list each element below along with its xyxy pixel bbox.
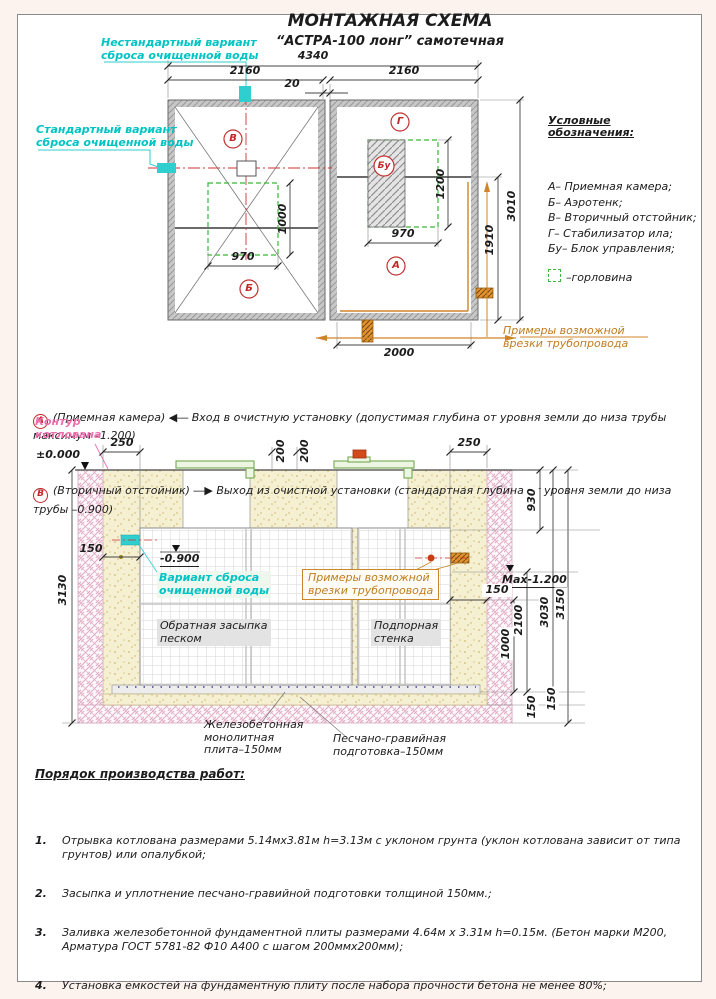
standard-discharge-stub — [157, 163, 176, 173]
legend-throat: –горловина — [548, 269, 700, 286]
work-order-item-number: 4. — [35, 979, 62, 993]
note-row: В(Вторичный отстойник) ―▶ Выход из очист… — [33, 471, 699, 516]
dim-150-left: 150 — [78, 543, 104, 556]
level-zero: ±0.000 — [36, 449, 80, 462]
dim-2000: 2000 — [374, 347, 424, 360]
dim-970-left: 970 — [223, 251, 263, 264]
dim-3130: 3130 — [57, 575, 70, 606]
marker-bu: Бу — [378, 160, 391, 173]
dim-150-right: 150 — [482, 584, 512, 597]
work-order-item: 3. Заливка железобетонной фундаментной п… — [35, 926, 689, 954]
work-order-item-number: 2. — [35, 887, 62, 901]
marker-v: В — [229, 133, 237, 146]
page-title: МОНТАЖНАЯ СХЕМА — [240, 15, 540, 28]
marker-b: Б — [245, 283, 253, 296]
work-order-item-text: Засыпка и уплотнение песчано-гравийной п… — [62, 887, 689, 901]
dim-3030: 3030 — [539, 596, 552, 629]
work-order-item: 2. Засыпка и уплотнение песчано-гравийно… — [35, 887, 689, 901]
dim-200-b: 200 — [299, 440, 312, 463]
nonstandard-discharge-stub — [239, 86, 251, 102]
dim-3010: 3010 — [506, 191, 519, 222]
page-subtitle: “АСТРА-100 лонг” самотечная — [240, 36, 540, 49]
dim-2160-left: 2160 — [215, 65, 275, 78]
legend-item: А– Приемная камера; — [548, 179, 700, 195]
work-order-item-number: 1. — [35, 834, 62, 862]
dim-1200: 1200 — [435, 169, 448, 200]
dim-250-left: 250 — [104, 437, 140, 450]
legend-item: В– Вторичный отстойник; — [548, 210, 700, 226]
dim-970-right: 970 — [383, 228, 423, 241]
work-order-item: 4. Установка емкостей на фундаментную пл… — [35, 979, 689, 993]
label-standard-discharge: Стандартный вариант сброса очищенной вод… — [36, 124, 194, 149]
work-order-item-text: Заливка железобетонной фундаментной плит… — [62, 926, 689, 954]
label-retaining-wall: Подпорная стенка — [371, 619, 441, 646]
dim-1000-plan: 1000 — [277, 204, 290, 235]
legend-title: Условные обозначения: — [548, 115, 700, 140]
label-pipe-examples-plan: Примеры возможной врезки трубопровода — [503, 325, 628, 350]
dim-150-gravel: 150 — [546, 687, 559, 712]
dim-250-right: 250 — [451, 437, 487, 450]
legend-item: Бу– Блок управления; — [548, 241, 700, 257]
dim-2100: 2100 — [513, 604, 526, 637]
dim-150-slab: 150 — [526, 695, 539, 720]
dim-2160-right: 2160 — [374, 65, 434, 78]
dim-1000-section: 1000 — [500, 628, 513, 661]
dim-3150: 3150 — [555, 588, 568, 621]
label-pit-contour: Контур котлована — [35, 416, 101, 441]
work-order-item-number: 3. — [35, 926, 62, 954]
work-order-item: 1. Отрывка котлована размерами 5.14мх3.8… — [35, 834, 689, 862]
label-backfill: Обратная засыпка песком — [157, 619, 271, 646]
dim-930: 930 — [526, 488, 539, 513]
dim-200-a: 200 — [275, 440, 288, 463]
work-order-list: 1. Отрывка котлована размерами 5.14мх3.8… — [35, 797, 689, 999]
work-order: Порядок производства работ: 1. Отрывка к… — [35, 755, 689, 999]
level-minus-0900: -0.900 — [160, 553, 199, 567]
work-order-title: Порядок производства работ: — [35, 768, 689, 781]
dim-20: 20 — [280, 78, 304, 91]
work-order-item-text: Отрывка котлована размерами 5.14мх3.81м … — [62, 834, 689, 862]
label-pipe-examples-section: Примеры возможной врезки трубопровода — [302, 569, 439, 600]
marker-a: А — [392, 260, 400, 273]
marker-g: Г — [397, 116, 403, 129]
legend: Условные обозначения: А– Приемная камера… — [548, 102, 700, 298]
label-slab: Железобетонная монолитная плита–150мм — [204, 719, 303, 757]
legend-item: Г– Стабилизатор ила; — [548, 226, 700, 242]
work-order-item-text: Установка емкостей на фундаментную плиту… — [62, 979, 689, 993]
note-marker: В — [33, 488, 48, 503]
dim-1910: 1910 — [484, 225, 497, 256]
throat-icon — [548, 269, 561, 282]
legend-item: Б– Аэротенк; — [548, 195, 700, 211]
dim-4340: 4340 — [283, 50, 343, 63]
label-nonstandard-discharge: Нестандартный вариант сброса очищенной в… — [101, 37, 259, 62]
label-discharge-variant: Вариант сброса очищенной воды — [157, 571, 271, 598]
drawing-sheet: МОНТАЖНАЯ СХЕМА “АСТРА-100 лонг” самотеч… — [0, 0, 716, 999]
legend-items: А– Приемная камера;Б– Аэротенк;В– Вторич… — [548, 154, 700, 257]
